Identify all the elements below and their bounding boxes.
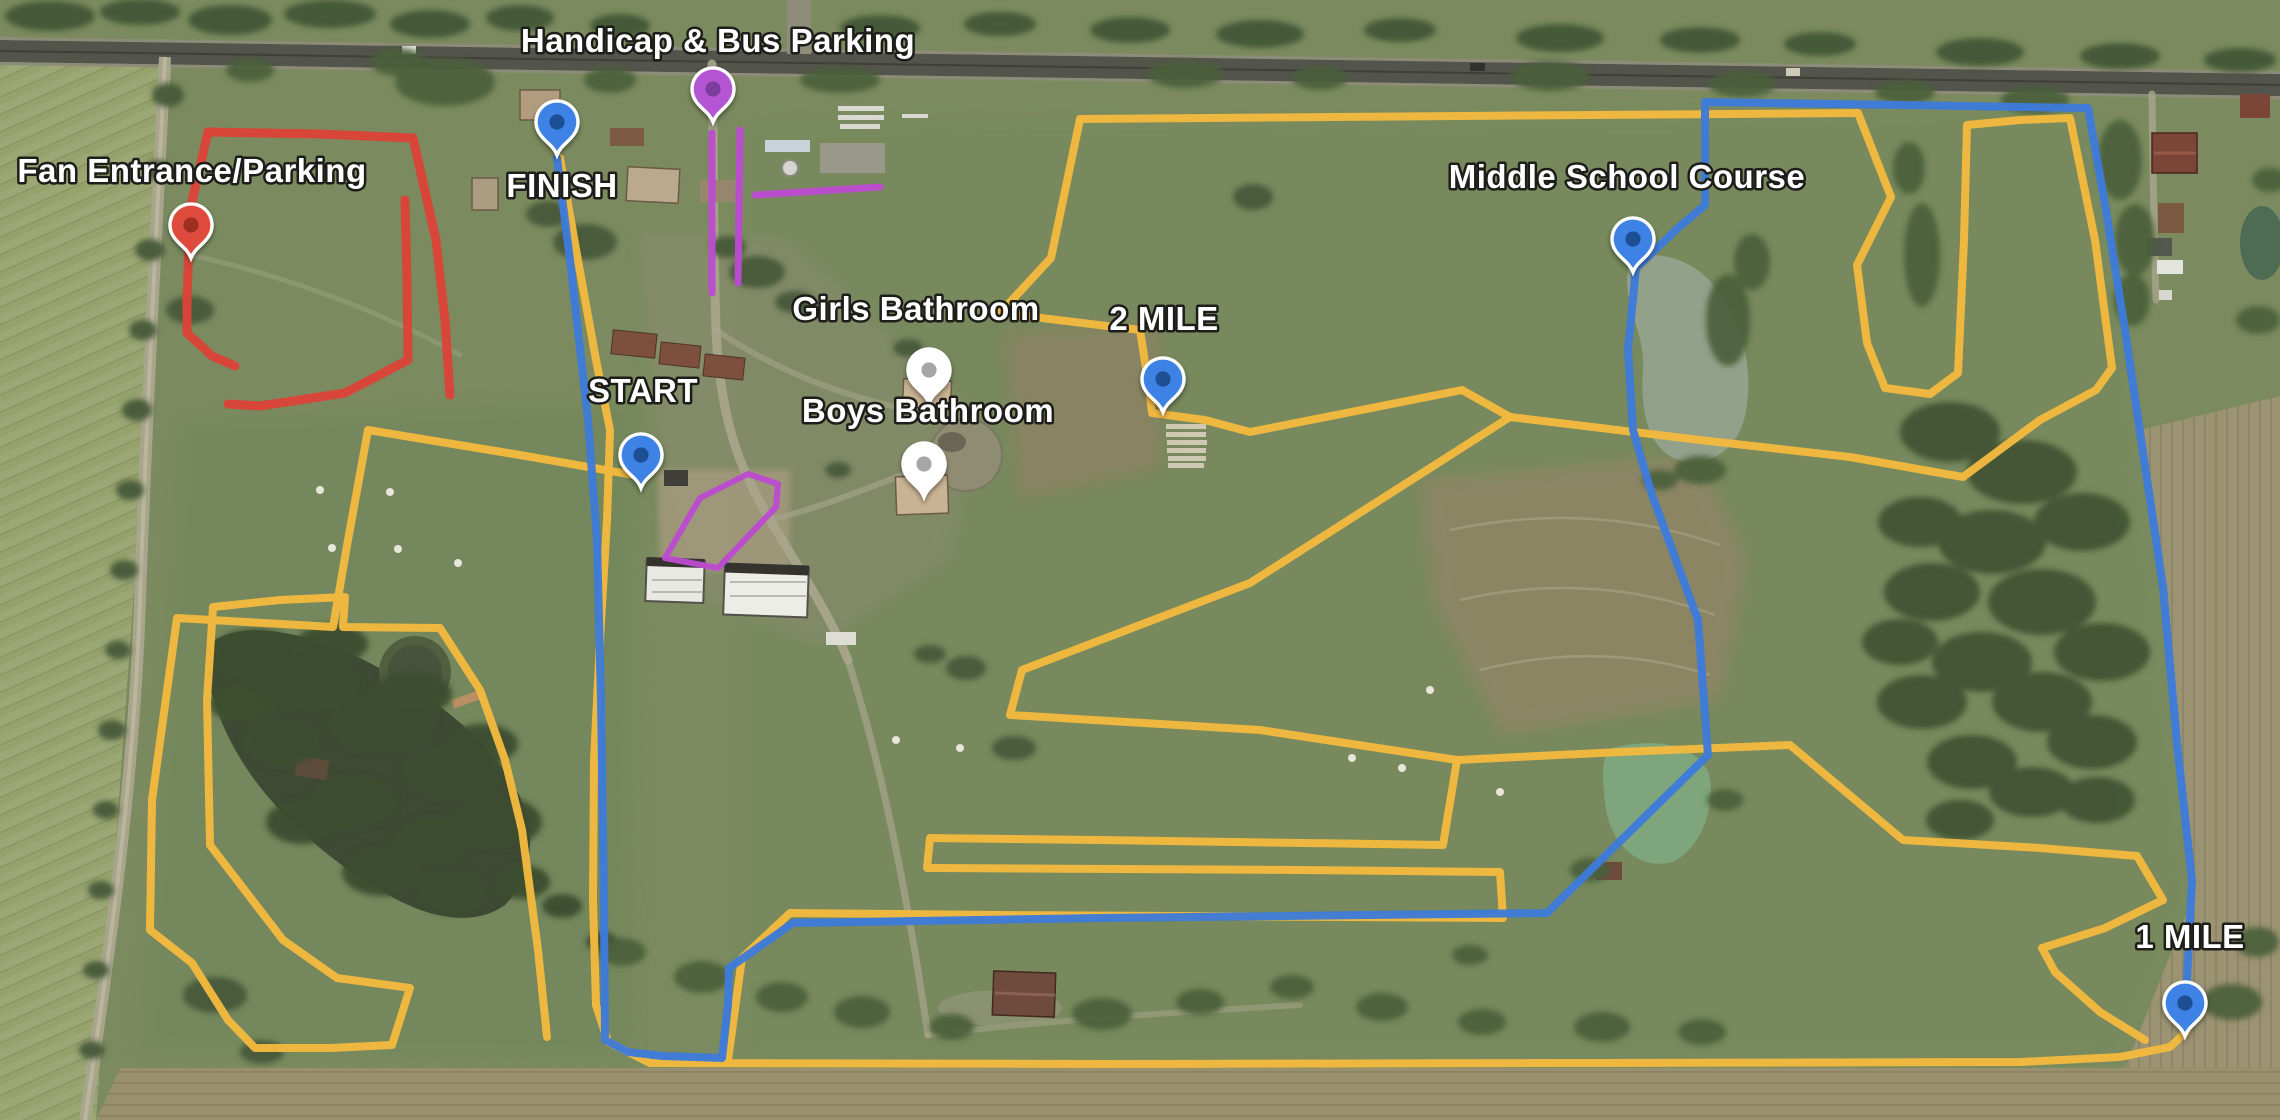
- label-fan-entrance-parking: Fan Entrance/Parking: [17, 152, 366, 189]
- label-two-mile: 2 MILE: [1109, 300, 1218, 337]
- label-start: START: [588, 372, 698, 409]
- label-middle-school-course: Middle School Course: [1449, 158, 1806, 195]
- map-canvas: Fan Entrance/ParkingFINISHHandicap & Bus…: [0, 0, 2280, 1120]
- label-girls-bathroom: Girls Bathroom: [792, 290, 1039, 327]
- satellite-map: Fan Entrance/ParkingFINISHHandicap & Bus…: [0, 0, 2280, 1120]
- route-bus-lane-east[interactable]: [738, 130, 740, 283]
- label-finish: FINISH: [506, 167, 617, 204]
- label-boys-bathroom: Boys Bathroom: [802, 392, 1054, 429]
- label-one-mile: 1 MILE: [2135, 918, 2244, 955]
- label-handicap-bus-parking: Handicap & Bus Parking: [521, 22, 915, 59]
